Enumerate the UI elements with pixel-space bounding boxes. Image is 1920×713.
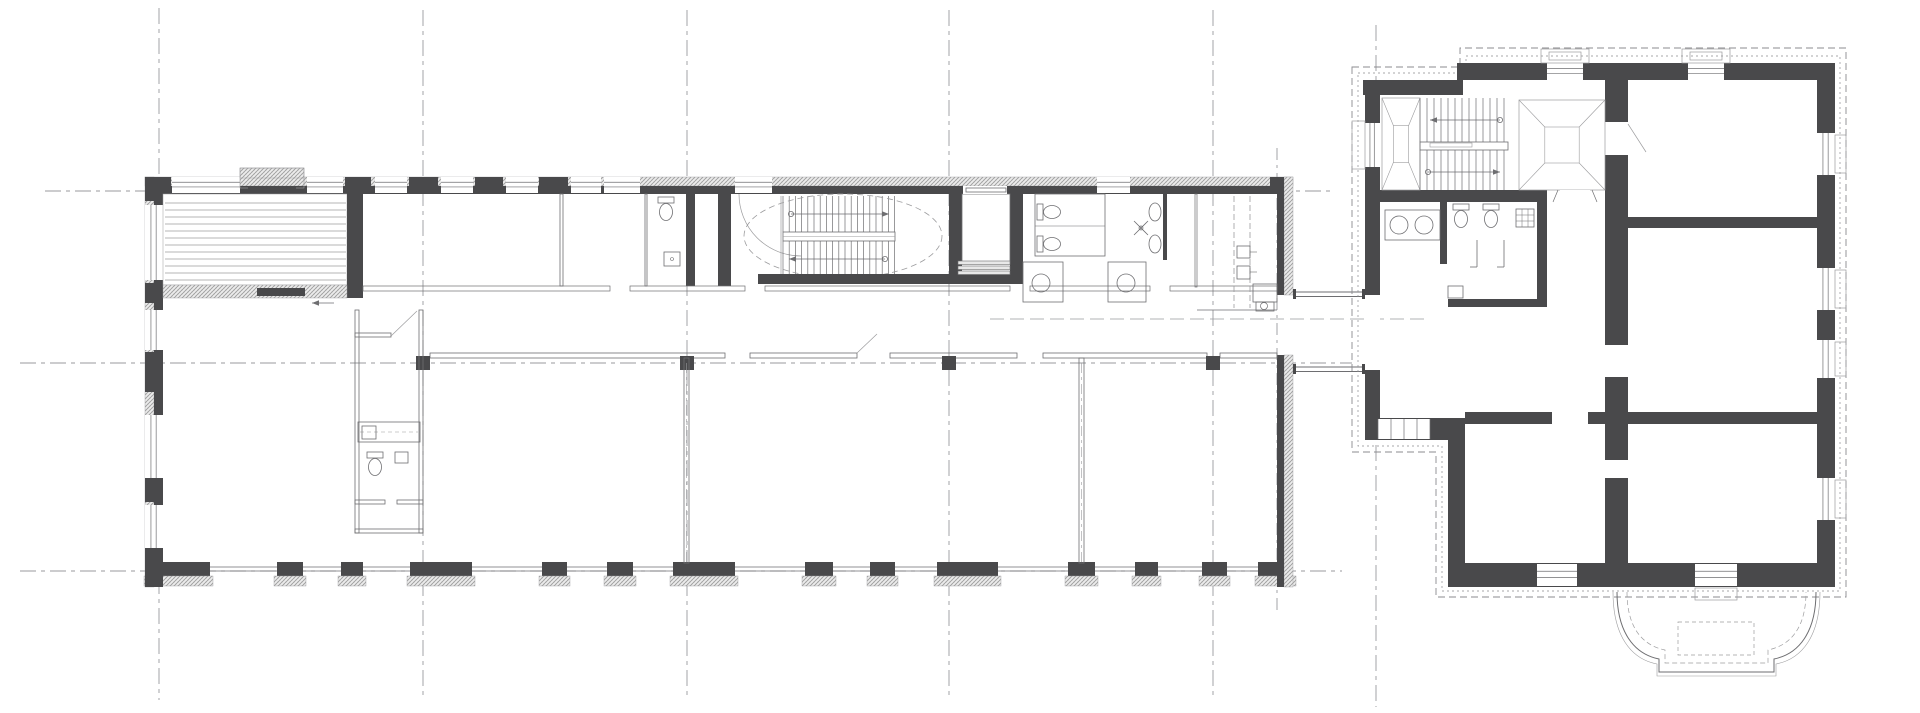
main-stair	[739, 194, 1023, 284]
old-building-bathrooms	[1385, 204, 1534, 298]
old-building-vestibule	[1519, 100, 1605, 202]
new-wing-bottom-wall	[144, 562, 1296, 586]
new-wing-left-wall	[145, 177, 163, 587]
floor-plan-page	[0, 0, 1920, 713]
link-bridges	[1293, 289, 1365, 374]
old-building-stair	[1382, 98, 1508, 190]
new-wing-right-wall	[1277, 177, 1293, 587]
service-room	[1195, 194, 1277, 311]
elevator	[949, 186, 1023, 275]
ramp-room	[163, 177, 363, 306]
old-building-bay	[1613, 592, 1820, 676]
new-wing-top-wall	[145, 168, 1293, 194]
sanitary-unit	[355, 310, 423, 533]
floor-plan-canvas	[0, 0, 1920, 713]
corridor-and-columns	[416, 334, 1277, 563]
old-building-boundary	[1352, 48, 1846, 597]
old-building-walls	[1352, 49, 1846, 600]
